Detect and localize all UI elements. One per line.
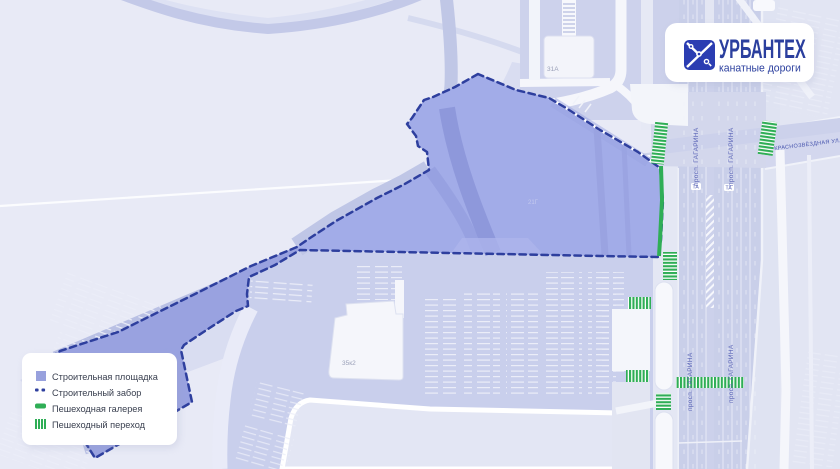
svg-text:21Г: 21Г — [528, 200, 539, 206]
svg-text:канатные дороги: канатные дороги — [719, 62, 801, 74]
svg-text:Пешеходный переход: Пешеходный переход — [52, 420, 146, 430]
svg-text:УРБАНТЕХ: УРБАНТЕХ — [719, 34, 806, 64]
svg-text:31А: 31А — [547, 66, 559, 73]
svg-text:Пешеходная галерея: Пешеходная галерея — [52, 404, 142, 414]
svg-text:просп. ГАГАРИНА: просп. ГАГАРИНА — [693, 127, 700, 186]
svg-text:Строительный забор: Строительный забор — [52, 388, 141, 398]
svg-text:просп. ГАГАРИНА: просп. ГАГАРИНА — [687, 352, 694, 411]
svg-text:35к2: 35к2 — [342, 360, 356, 367]
svg-text:просп. ГАГАРИНА: просп. ГАГАРИНА — [728, 344, 735, 403]
svg-text:просп. ГАГАРИНА: просп. ГАГАРИНА — [728, 127, 735, 186]
svg-text:Строительная площадка: Строительная площадка — [52, 372, 159, 382]
